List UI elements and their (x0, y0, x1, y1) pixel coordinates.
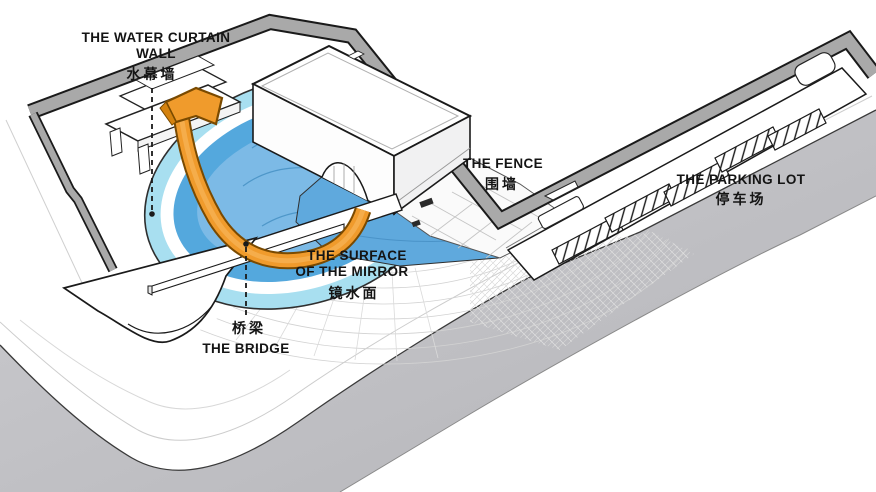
label-fence-en: THE FENCE (463, 156, 543, 171)
label-bridge-zh: 桥梁 (232, 320, 266, 336)
building-leg (138, 144, 150, 174)
site-diagram-canvas: THE WATER CURTAIN WALL 水幕墙 THE FENCE 围墙 … (0, 0, 876, 492)
label-fence-zh: 围墙 (485, 176, 519, 192)
label-mirror-surface-en2: OF THE MIRROR (295, 264, 408, 279)
bridge-beam-endcap (148, 286, 152, 295)
bridge-anchor-dot (243, 241, 249, 247)
water-curtain-anchor-dot (149, 211, 155, 217)
site-diagram: THE WATER CURTAIN WALL 水幕墙 THE FENCE 围墙 … (0, 0, 876, 492)
label-parking-lot-zh: 停车场 (716, 191, 767, 207)
label-water-curtain-wall-zh: 水幕墙 (127, 66, 178, 82)
label-parking-lot-en: THE PARKING LOT (677, 172, 806, 187)
label-bridge-en: THE BRIDGE (202, 341, 289, 356)
label-mirror-surface-zh: 镜水面 (329, 285, 380, 301)
label-water-curtain-wall-en1: THE WATER CURTAIN (82, 30, 231, 45)
label-water-curtain-wall-en2: WALL (136, 46, 176, 61)
building-leg (110, 128, 122, 156)
label-mirror-surface-en1: THE SURFACE (307, 248, 407, 263)
